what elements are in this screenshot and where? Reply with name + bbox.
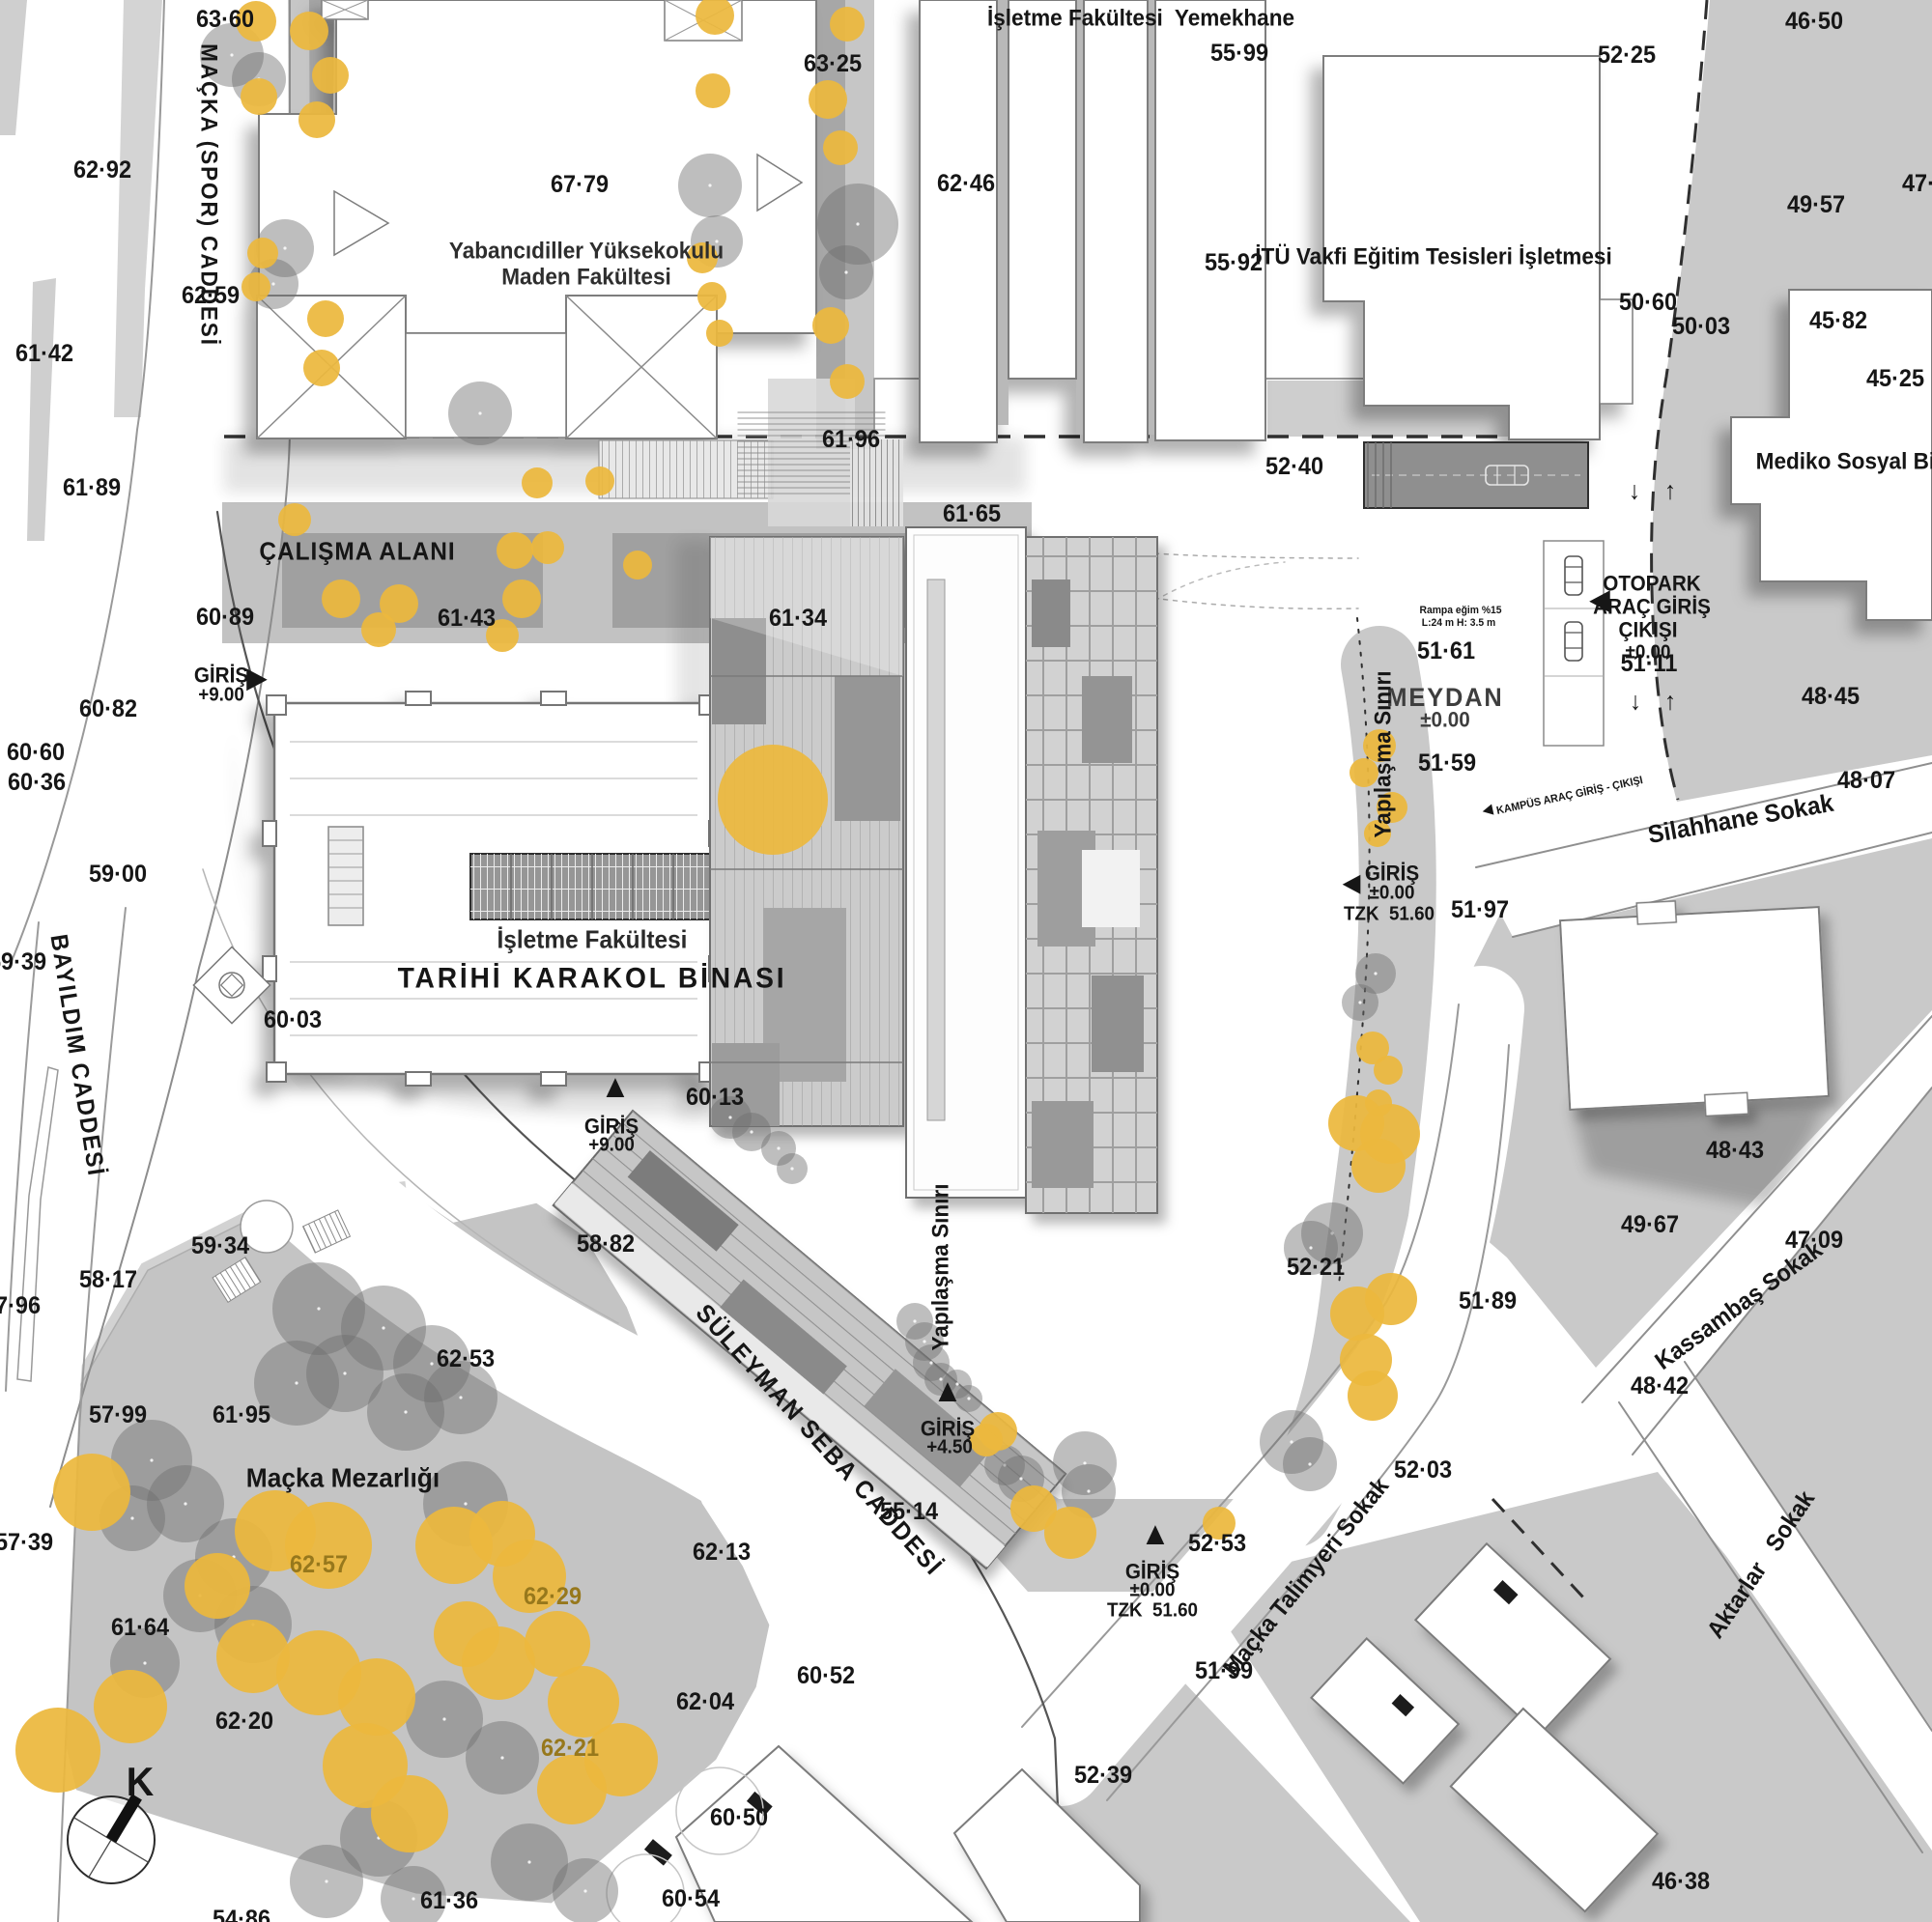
tree-center-dot	[728, 1116, 731, 1118]
tree-yellow-icon	[285, 1502, 372, 1589]
tree-center-dot	[715, 240, 718, 242]
tree-yellow-icon	[94, 1670, 167, 1743]
tree-center-dot	[967, 1397, 970, 1399]
tree-center-dot	[1019, 1477, 1022, 1480]
tree-yellow-icon	[241, 78, 277, 115]
tree-yellow-icon	[1377, 792, 1407, 823]
tree-yellow-icon	[1350, 758, 1378, 787]
tree-yellow-icon	[486, 619, 519, 652]
tree-yellow-icon	[697, 282, 726, 311]
tree-center-dot	[271, 282, 274, 285]
tree-center-dot	[430, 1362, 433, 1365]
tree-center-dot	[184, 1502, 186, 1505]
tree-yellow-icon	[493, 1540, 566, 1613]
tree-center-dot	[283, 246, 286, 249]
tree-yellow-icon	[522, 467, 553, 498]
tree-center-dot	[923, 1340, 925, 1343]
building-yemekhane-slabs	[920, 0, 1265, 442]
tree-yellow-icon	[1363, 729, 1396, 762]
tree-center-dot	[844, 270, 847, 273]
tree-yellow-icon	[1364, 820, 1391, 847]
tree-yellow-icon	[830, 7, 865, 42]
cemetery-round-plaza	[241, 1201, 293, 1253]
tree-center-dot	[459, 1396, 462, 1399]
tree-center-dot	[500, 1756, 503, 1759]
tree-yellow-icon	[706, 320, 733, 347]
base-map	[0, 0, 1932, 1922]
building-itu-vakfi	[1323, 56, 1633, 439]
tree-yellow-icon	[623, 551, 652, 579]
tree-center-dot	[478, 411, 481, 414]
tree-yellow-icon	[537, 1755, 607, 1824]
tree-yellow-icon	[502, 579, 541, 618]
tree-center-dot	[527, 1860, 530, 1863]
tree-yellow-icon	[241, 272, 270, 301]
tree-yellow-icon	[970, 1424, 1003, 1456]
tree-center-dot	[583, 1889, 586, 1892]
tree-yellow-icon	[1351, 1139, 1406, 1193]
tree-yellow-icon	[1044, 1507, 1096, 1559]
tree-yellow-icon	[1330, 1286, 1384, 1341]
tree-center-dot	[790, 1167, 793, 1170]
tree-yellow-icon	[696, 73, 730, 108]
tree-yellow-icon	[497, 532, 533, 569]
tree-center-dot	[1374, 972, 1377, 975]
tree-yellow-icon	[823, 130, 858, 165]
tree-center-dot	[750, 1130, 753, 1133]
tree-center-dot	[317, 1307, 320, 1310]
tree-yellow-icon	[247, 238, 278, 269]
tree-yellow-icon	[290, 12, 328, 50]
tree-yellow-icon	[1348, 1371, 1398, 1421]
tree-yellow-icon	[1374, 1056, 1403, 1085]
tree-yellow-icon	[298, 101, 335, 138]
tree-center-dot	[130, 1516, 133, 1519]
tree-yellow-icon	[812, 307, 849, 344]
tree-yellow-icon	[303, 350, 340, 386]
tree-yellow-icon	[531, 531, 564, 564]
otopark-ramp	[1364, 442, 1588, 508]
tree-center-dot	[1309, 1246, 1312, 1249]
tree-center-dot	[708, 184, 711, 186]
parking-bay	[1544, 541, 1604, 746]
tree-center-dot	[382, 1326, 384, 1329]
tree-center-dot	[913, 1319, 916, 1322]
tree-center-dot	[1358, 1001, 1361, 1003]
site-plan: 63·6062·9262·5961·4261·8967·7963·2562·46…	[0, 0, 1932, 1922]
tree-yellow-icon	[830, 364, 865, 399]
tree-yellow-icon	[307, 300, 344, 337]
tree-yellow-icon	[236, 1, 276, 42]
tree-center-dot	[1083, 1461, 1086, 1464]
tree-center-dot	[1290, 1440, 1293, 1443]
tree-center-dot	[777, 1146, 780, 1149]
tree-yellow-icon	[371, 1775, 448, 1852]
tree-yellow-icon	[718, 745, 828, 855]
tree-center-dot	[343, 1371, 346, 1374]
tree-yellow-icon	[1203, 1507, 1236, 1540]
tree-center-dot	[1087, 1489, 1090, 1492]
tree-center-dot	[295, 1381, 298, 1384]
tree-center-dot	[929, 1361, 932, 1364]
tree-yellow-icon	[585, 466, 614, 495]
tree-yellow-icon	[687, 242, 718, 273]
tree-yellow-icon	[361, 612, 396, 647]
tree-yellow-icon	[185, 1553, 250, 1619]
tree-yellow-icon	[278, 503, 311, 536]
tree-center-dot	[150, 1458, 153, 1461]
tree-center-dot	[955, 1382, 958, 1385]
tree-center-dot	[464, 1502, 467, 1505]
tree-yellow-icon	[462, 1626, 535, 1700]
tree-yellow-icon	[312, 57, 349, 94]
building-tarihi-karakol	[263, 692, 723, 1086]
tree-yellow-icon	[338, 1658, 415, 1736]
tree-center-dot	[442, 1717, 445, 1720]
tree-center-dot	[230, 53, 233, 56]
tree-center-dot	[325, 1880, 327, 1882]
tree-center-dot	[1308, 1462, 1311, 1465]
tree-center-dot	[404, 1410, 407, 1413]
building-silahhane-block	[1559, 893, 1829, 1123]
tree-center-dot	[143, 1661, 146, 1664]
tree-center-dot	[939, 1377, 942, 1380]
tree-yellow-icon	[53, 1454, 130, 1531]
tree-center-dot	[412, 1897, 414, 1900]
tree-yellow-icon	[809, 80, 847, 119]
tree-center-dot	[856, 222, 859, 225]
tree-yellow-icon	[15, 1708, 100, 1793]
tree-yellow-icon	[322, 579, 360, 618]
